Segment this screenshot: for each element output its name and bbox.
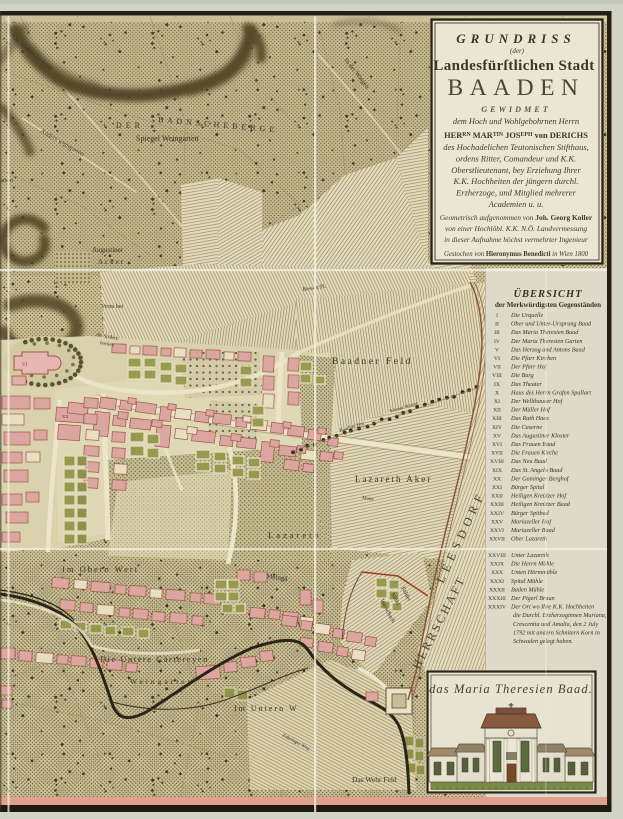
svg-text:Die Untere Gärtereyen: Die Untere Gärtereyen <box>100 654 209 664</box>
svg-text:Lazareth Aker: Lazareth Aker <box>355 474 432 484</box>
svg-text:Der Pigerl Braun: Der Pigerl Braun <box>510 595 555 602</box>
svg-text:Weingarten: Weingarten <box>130 677 194 686</box>
svg-text:Die Pfarr Kirchen: Die Pfarr Kirchen <box>510 355 556 362</box>
svg-text:III: III <box>494 330 500 336</box>
svg-text:XI: XI <box>494 399 500 405</box>
svg-text:XXIII: XXIII <box>490 502 504 508</box>
svg-text:die Durchl. Erzherzoginnen Mar: die Durchl. Erzherzoginnen Mariana, <box>513 612 607 619</box>
svg-text:D E R: D E R <box>116 121 141 130</box>
svg-text:XXXII: XXXII <box>489 587 505 593</box>
svg-text:XXII: XXII <box>491 494 503 500</box>
svg-text:dem Hoch und Wohlgebohrnen Her: dem Hoch und Wohlgebohrnen Herrn <box>453 117 579 126</box>
svg-text:XXX: XXX <box>491 570 503 576</box>
svg-text:Die Burg: Die Burg <box>510 372 534 379</box>
svg-text:XX: XX <box>493 476 501 482</box>
svg-text:Gestochen von Hieronymus Bened: Gestochen von Hieronymus Benedicti in Wi… <box>444 251 589 258</box>
svg-text:Heiligen Kreützer Hof: Heiligen Kreützer Hof <box>510 493 567 500</box>
svg-text:XIX: XIX <box>492 468 502 474</box>
svg-text:(der): (der) <box>510 47 525 55</box>
svg-text:XVI: XVI <box>492 442 502 448</box>
svg-text:Spiegel Weingarten: Spiegel Weingarten <box>136 134 199 143</box>
svg-text:VIII: VIII <box>492 373 502 379</box>
svg-text:Augustiner: Augustiner <box>92 246 124 254</box>
svg-text:K.K. Hochheiten der jüngern du: K.K. Hochheiten der jüngern durchl. <box>452 176 578 186</box>
svg-text:Heiligen Kreützer Baad: Heiligen Kreützer Baad <box>510 501 571 508</box>
svg-text:Die Urquelle: Die Urquelle <box>510 312 543 319</box>
svg-text:Unten Hörmmühle: Unten Hörmmühle <box>511 569 557 576</box>
svg-text:Bürger Spitbad: Bürger Spitbad <box>511 510 550 517</box>
svg-text:XXVII: XXVII <box>489 537 505 543</box>
svg-text:1792 mit andern Schnitern Korn: 1792 mit andern Schnitern Korn in <box>513 629 600 636</box>
svg-text:Die Herrn Mühle: Die Herrn Mühle <box>510 561 554 568</box>
svg-text:XVIII: XVIII <box>490 459 504 465</box>
svg-text:in dieser Aufnahme höchst verm: in dieser Aufnahme höchst vermehrter Ing… <box>444 235 588 244</box>
svg-text:Geometrisch aufgenommen von Jo: Geometrisch aufgenommen von Joh. Georg K… <box>440 213 593 222</box>
svg-text:ordens Ritter, Comandeur und K: ordens Ritter, Comandeur und K.K. <box>456 153 576 163</box>
svg-text:Haus des Herrn Grafen Spallart: Haus des Herrn Grafen Spallart <box>510 389 591 396</box>
svg-text:XXXIV: XXXIV <box>488 605 506 611</box>
svg-text:Oberstlieutenant, bey Erziehun: Oberstlieutenant, bey Erziehung Ihrer <box>451 165 581 175</box>
svg-text:IX: IX <box>494 382 500 388</box>
svg-text:Der Müller Hof: Der Müller Hof <box>510 407 551 414</box>
svg-text:Acker: Acker <box>98 258 125 266</box>
svg-text:der Merkwürdigsten Gegenstände: der Merkwürdigsten Gegenständen <box>495 301 601 309</box>
svg-text:Landesfürſtlichen Stadt: Landesfürſtlichen Stadt <box>433 58 594 74</box>
svg-text:Die Caserne: Die Caserne <box>510 424 542 431</box>
svg-text:Unter Lazareth: Unter Lazareth <box>511 552 549 559</box>
svg-text:XXVI: XXVI <box>490 528 504 534</box>
svg-text:IV: IV <box>494 339 500 345</box>
svg-text:Im Obern Wert: Im Obern Wert <box>62 564 139 574</box>
svg-text:XII: XII <box>493 408 501 414</box>
svg-text:XIII: XIII <box>492 416 502 422</box>
svg-text:GRUNDRISS: GRUNDRISS <box>456 31 575 46</box>
svg-text:Schwaden gelegt haben.: Schwaden gelegt haben. <box>513 638 573 645</box>
svg-text:Baden Mühle: Baden Mühle <box>511 586 544 593</box>
svg-text:Das Herzog und Antons Baad: Das Herzog und Antons Baad <box>510 346 586 353</box>
svg-text:XXIX: XXIX <box>490 562 504 568</box>
svg-text:XXXI: XXXI <box>490 579 504 585</box>
svg-text:Der Ort wo Ihre K.K. Hochheite: Der Ort wo Ihre K.K. Hochheiten <box>510 604 594 611</box>
svg-text:Lazareth: Lazareth <box>268 530 322 540</box>
svg-text:V: V <box>495 347 499 353</box>
svg-text:I: I <box>496 313 498 319</box>
svg-text:XIV: XIV <box>492 425 502 431</box>
svg-text:XXIV: XXIV <box>490 511 504 517</box>
svg-text:ÜBERSICHT: ÜBERSICHT <box>513 287 582 300</box>
svg-text:XXV: XXV <box>491 519 503 525</box>
svg-text:Der Wellthauser Hof: Der Wellthauser Hof <box>510 398 564 405</box>
svg-text:VI: VI <box>22 363 28 368</box>
svg-text:Erzherzoge, und Mitglied mehre: Erzherzoge, und Mitglied mehrerer <box>455 188 576 198</box>
svg-text:Ober Lazareth: Ober Lazareth <box>511 536 547 543</box>
svg-text:Ober und Unter-Ursprung Baad: Ober und Unter-Ursprung Baad <box>511 321 592 328</box>
svg-text:Mariazeller Baad: Mariazeller Baad <box>510 527 556 534</box>
svg-text:BAADEN: BAADEN <box>448 75 585 101</box>
svg-text:Im Untern W: Im Untern W <box>234 704 299 713</box>
svg-text:arten: arten <box>0 177 14 184</box>
svg-text:XX: XX <box>62 414 69 419</box>
svg-text:XV: XV <box>493 433 501 439</box>
svg-text:Das Maria Theresien Baad: Das Maria Theresien Baad <box>510 329 579 336</box>
svg-text:Das Wehr Feld: Das Wehr Feld <box>352 775 397 784</box>
svg-text:Veres bei: Veres bei <box>101 304 123 310</box>
svg-text:GEWIDMET: GEWIDMET <box>481 105 551 114</box>
svg-text:XXXIII: XXXIII <box>488 596 506 602</box>
svg-text:Der Pfarr Hof: Der Pfarr Hof <box>510 364 548 371</box>
svg-text:XXI: XXI <box>492 485 502 491</box>
svg-text:Die Frauen Kirche: Die Frauen Kirche <box>510 450 558 457</box>
svg-text:das Maria Theresien Baad.: das Maria Theresien Baad. <box>429 682 593 696</box>
svg-text:Bürger Spital: Bürger Spital <box>511 484 545 491</box>
svg-text:Das Neu Baad: Das Neu Baad <box>510 458 548 465</box>
svg-text:Das Augustiner Kloster: Das Augustiner Kloster <box>510 432 570 439</box>
svg-text:Das Rath Haus: Das Rath Haus <box>510 415 549 422</box>
svg-text:Baadner Feld: Baadner Feld <box>332 357 413 367</box>
svg-text:Der Gaminger Berghof: Der Gaminger Berghof <box>510 475 570 482</box>
svg-text:X: X <box>495 390 499 396</box>
svg-text:Spital Mühle: Spital Mühle <box>511 578 543 585</box>
svg-text:Academien u. u.: Academien u. u. <box>488 199 544 209</box>
svg-text:Das St. Angelo Baad: Das St. Angelo Baad <box>510 467 563 474</box>
svg-text:VI: VI <box>494 356 500 362</box>
svg-text:Das Frauen Baad: Das Frauen Baad <box>510 441 556 448</box>
svg-text:des Hochadelichen Teutonischen: des Hochadelichen Teutonischen Stifthaus… <box>443 142 589 152</box>
svg-text:VII: VII <box>493 365 501 371</box>
svg-text:XVII: XVII <box>491 451 503 457</box>
svg-text:Crescentia und Amalia, den 2 J: Crescentia und Amalia, den 2 July <box>513 621 598 628</box>
svg-text:II: II <box>495 322 499 328</box>
svg-text:Das Theater: Das Theater <box>510 381 542 388</box>
svg-text:von einer Hochlöbl. K.K. N.Ö.: von einer Hochlöbl. K.K. N.Ö. Landvermes… <box>445 224 587 233</box>
svg-text:XXVIII: XXVIII <box>488 553 506 559</box>
